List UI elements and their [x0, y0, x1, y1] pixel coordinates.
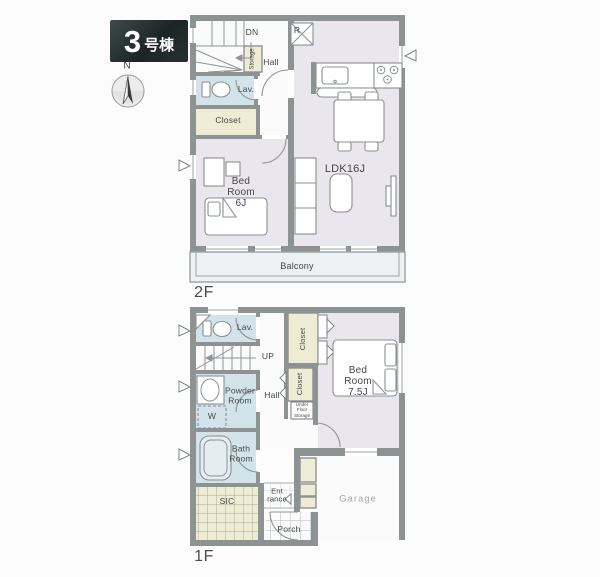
label-storage-2f: Storage [250, 48, 257, 69]
label-under-floor-storage: Under Floor Storage [294, 402, 310, 418]
floorplan-graphics [0, 0, 600, 577]
floor1-label: 1F [194, 548, 214, 566]
label-hall-2f: Hall [263, 58, 278, 68]
vanity-sink-icon [197, 376, 224, 404]
label-closet-hall: Closet [296, 373, 304, 395]
dining-set-icon [334, 92, 384, 151]
floor2-label: 2F [194, 284, 214, 302]
label-closet-2f: Closet [215, 116, 240, 126]
label-garage: Garage [339, 495, 377, 506]
label-bedroom-6j: Bed Room 6J [227, 176, 254, 210]
label-washer: W [208, 412, 216, 422]
label-powder-room: Powder Room [225, 386, 255, 405]
wall-markers-1f [179, 325, 190, 460]
sofa-icon [295, 158, 316, 234]
floor2-plan [179, 15, 416, 282]
label-porch: Porch [277, 525, 300, 535]
label-sic: SIC [220, 497, 235, 507]
label-entrance: Ent rance [267, 488, 287, 505]
coffee-table-icon [330, 174, 352, 212]
label-lav-1f: Lav. [237, 323, 253, 333]
label-dn: DN [246, 28, 259, 38]
label-lav-2f: Lav. [238, 85, 254, 95]
floorplan-sheet: 3 号棟 N [0, 0, 600, 577]
room-sic [196, 487, 258, 540]
label-balcony: Balcony [280, 261, 313, 271]
label-closet-bedroom: Closet [299, 328, 307, 350]
label-ldk: LDK16J [325, 163, 365, 175]
bathtub-icon [200, 436, 231, 480]
floor1-plan [179, 307, 405, 546]
toilet-icon-2f [202, 82, 230, 97]
label-hall-1f: Hall [264, 391, 279, 401]
compass-icon [112, 75, 144, 107]
label-bath-room: Bath Room [229, 444, 252, 463]
label-bedroom-75j: Bed Room 7.5J [344, 365, 371, 399]
label-refrigerator: R [294, 26, 300, 36]
label-up: UP [262, 352, 274, 362]
